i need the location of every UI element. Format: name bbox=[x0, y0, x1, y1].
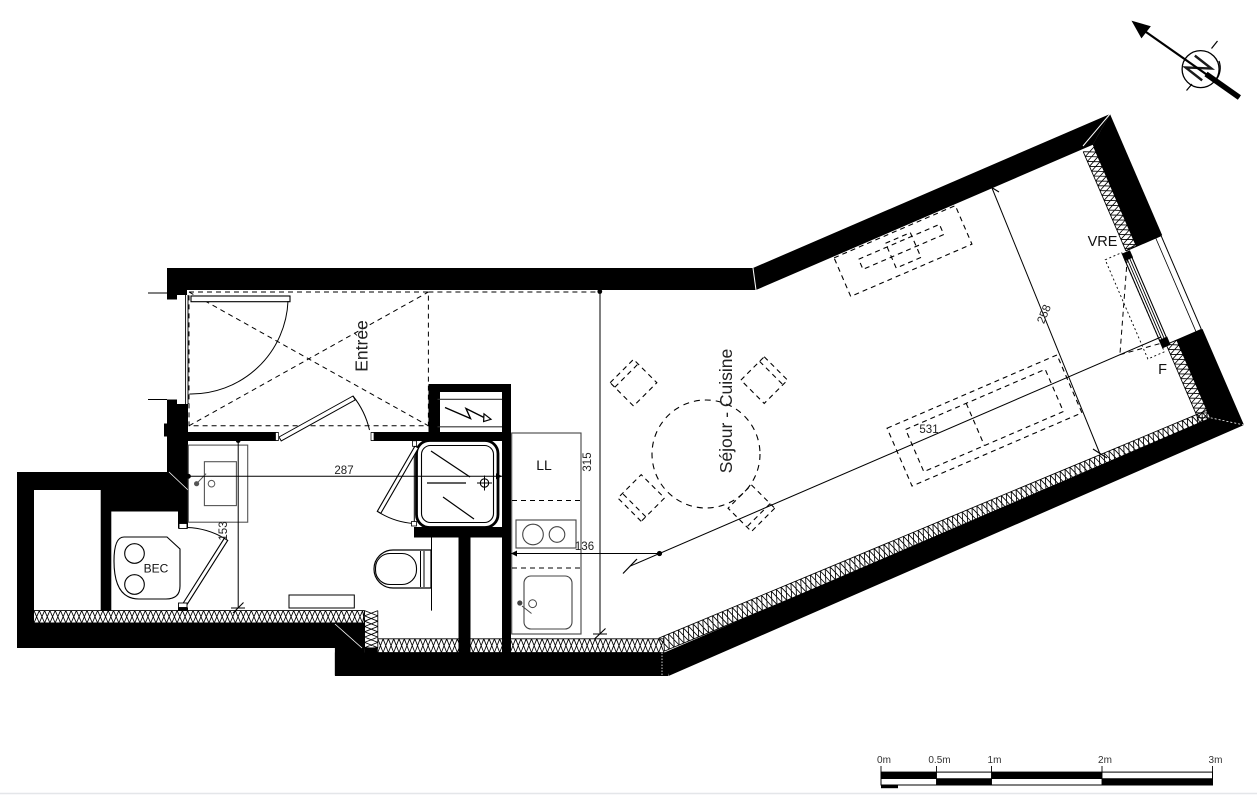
svg-text:136: 136 bbox=[575, 541, 594, 553]
svg-text:1m: 1m bbox=[988, 755, 1002, 766]
svg-text:LL: LL bbox=[536, 457, 552, 473]
svg-text:287: 287 bbox=[334, 465, 353, 477]
svg-text:VRE: VRE bbox=[1088, 234, 1118, 250]
svg-text:2m: 2m bbox=[1098, 755, 1112, 766]
svg-text:BEC: BEC bbox=[144, 562, 169, 576]
svg-text:153: 153 bbox=[218, 521, 230, 540]
svg-text:F: F bbox=[1158, 362, 1167, 378]
svg-text:0.5m: 0.5m bbox=[928, 755, 950, 766]
svg-text:Séjour - Cuisine: Séjour - Cuisine bbox=[716, 349, 736, 474]
svg-text:315: 315 bbox=[582, 452, 594, 471]
svg-text:531: 531 bbox=[919, 424, 938, 436]
svg-text:3m: 3m bbox=[1209, 755, 1223, 766]
svg-text:Entrée: Entrée bbox=[352, 320, 372, 372]
svg-text:0m: 0m bbox=[877, 755, 891, 766]
